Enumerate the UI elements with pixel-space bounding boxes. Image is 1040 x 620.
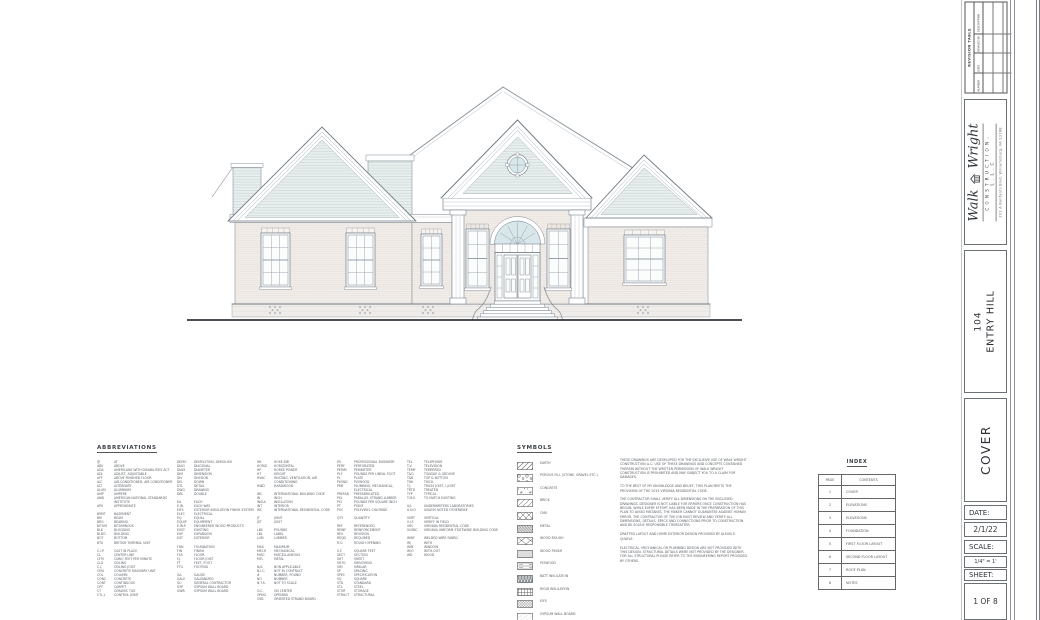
abbreviation-definition: LUMBER	[274, 536, 337, 540]
abbreviation-entry: JSTJOIST	[257, 520, 337, 524]
project-title-block: 104 ENTRY HILL	[964, 250, 1007, 393]
abbreviation-entry: PVCPOLYVINYL CHLORIDE	[337, 508, 407, 512]
note-paragraph: ELECTRICAL, MECHANICAL OR PLUMBING DESIG…	[620, 546, 748, 563]
index-page-number: 1	[819, 485, 842, 498]
index-page-number: 6	[819, 550, 842, 563]
symbol-label: CMU	[540, 512, 547, 516]
abbreviation-key: EXT	[177, 536, 194, 540]
symbol-label: WOOD FINISH	[540, 550, 562, 554]
symbol-label: GYPSUM WALL BOARD	[540, 613, 575, 617]
index-header: PAGE	[819, 474, 842, 485]
sheet-label: SHEET:	[964, 569, 1007, 581]
cmu-hatch-swatch	[517, 512, 533, 520]
abbreviation-entry: BTUBRITISH THERMAL UNIT	[97, 541, 177, 545]
revision-table-title: REVISION TABLE	[965, 2, 974, 92]
revision-column-header: REVISED BY	[974, 33, 982, 53]
abbreviation-key: PVC	[337, 508, 354, 512]
note-paragraph: TO THE BEST OF MY KNOWLEDGE AND BELIEF, …	[620, 484, 748, 493]
index-row: 7ROOF PLAN	[819, 563, 896, 576]
index-contents: ELEVATIONS	[842, 498, 896, 511]
abbreviation-entry: T.M.E.TO MATCH EXISTING	[407, 496, 502, 500]
abbreviation-key: STRUCT	[337, 593, 354, 597]
abbreviation-definition: WOOD	[424, 553, 502, 557]
symbol-legend-item: GYPSUM WALL BOARD	[517, 613, 613, 620]
abbreviation-entry: STRUCTSTRUCTURAL	[337, 593, 407, 597]
abbreviation-key: CTL.J.	[97, 593, 114, 597]
note-paragraph: THESE DRAWINGS ARE DEVELOPED FOR THE EXC…	[620, 458, 748, 480]
abbreviation-key: IRC	[257, 508, 274, 512]
abbreviation-definition: EXTERIOR	[194, 536, 257, 540]
symbol-legend-item: CMU	[517, 512, 613, 520]
revision-empty-cell	[983, 33, 992, 53]
abbreviation-definition: JOIST	[274, 520, 337, 524]
symbol-legend-item: RIGID INSULATION	[517, 588, 613, 596]
symbol-label: POROUS FILL (STONE, GRAVEL ETC.)	[540, 474, 598, 478]
symbol-label: BRICK	[540, 499, 550, 503]
revision-column-header: DESCRIPTION	[974, 2, 982, 33]
abbreviation-key: FTG	[177, 565, 194, 569]
note-paragraph: THE CONTRACTOR SHALL VERIFY ALL DIMENSIO…	[620, 497, 748, 527]
woodrough-hatch-swatch	[517, 537, 533, 545]
index-row: 1COVER	[819, 485, 896, 498]
abbreviation-key: OSB	[257, 597, 274, 601]
gypsum-hatch-swatch	[517, 613, 533, 620]
portico-right-window	[546, 224, 572, 290]
index-page-number: 2	[819, 498, 842, 511]
metal-hatch-swatch	[517, 525, 533, 533]
left-wing-window-1	[260, 228, 292, 289]
abbreviation-entry: HVACHEATING, VENTILATION, AIR CONDITIONI…	[257, 476, 337, 484]
abbreviation-key: LUM	[257, 536, 274, 540]
abbreviation-definition: ORIENTED STRAND BOARD	[274, 597, 337, 601]
abbreviation-key: U.N.O	[407, 508, 424, 512]
project-name: ENTRY HILL	[986, 290, 997, 352]
abbreviation-column: HBHOSE BIBHORIZHORIZONTALHPHORSE POWERHT…	[257, 460, 337, 602]
company-logo-block: Walk Wright CONSTRUCTION, L.L.C 201 A Bu…	[964, 99, 1007, 245]
revision-empty-cell	[983, 52, 992, 72]
index-row: 3ELEVATIONS	[819, 511, 896, 524]
abbreviations-title: ABBREVIATIONS	[97, 445, 157, 453]
index-page-number: 4	[819, 524, 842, 537]
abbreviation-column: P.E.PROFESSIONAL ENGINEERPERFPERFORATEDP…	[337, 460, 407, 598]
index-page-number: 7	[819, 563, 842, 576]
abbreviation-entry: FTGFOOTING	[177, 565, 257, 569]
abbreviation-key: GWB	[177, 589, 194, 593]
revision-empty-row	[983, 2, 993, 92]
symbols-list: EARTHPOROUS FILL (STONE, GRAVEL ETC.)CON…	[517, 462, 613, 620]
abbreviation-key: QTY	[337, 516, 354, 520]
recess-window	[420, 229, 444, 288]
abbreviation-entry: GWBGYPSUM WALL BOARD	[177, 589, 257, 593]
plywood-hatch-swatch	[517, 562, 533, 570]
rigid-hatch-swatch	[517, 588, 533, 596]
abbreviation-definition: HEATING, VENTILATION, AIR CONDITIONING	[274, 476, 337, 484]
abbreviation-key: HWD	[257, 484, 274, 488]
abbreviation-entry: VUSBCVIRGINIA UNIFORM STATEWIDE BUILDING…	[407, 528, 502, 532]
abbreviation-entry: MTLMETAL	[257, 557, 337, 561]
scale-value: 1/4" = 1'	[964, 556, 1007, 568]
symbol-legend-item: BRICK	[517, 499, 613, 507]
abbreviation-definition: ROUGH OPENING	[354, 541, 407, 545]
abbreviation-definition: POLYVINYL CHLORIDE	[354, 508, 407, 512]
abbreviation-key: VUSBC	[407, 528, 424, 532]
note-paragraph: DRAFTED LAYOUT AND HOME EXTERIOR DESIGN …	[620, 532, 748, 541]
logo-word-walk: Walk	[968, 189, 981, 221]
symbol-label: EIFS	[540, 600, 547, 604]
abbreviations-columns: @ATABVABOVEADAAMERICANS WITH DISABILITIE…	[97, 460, 507, 602]
abbreviation-key: T.M.E.	[407, 496, 424, 500]
abbreviation-definition: PLUMBING, MECHANICAL, ELECTRICAL	[354, 484, 407, 492]
abbreviation-definition: VIRGINIA UNIFORM STATEWIDE BUILDING CODE	[424, 528, 502, 532]
abbreviation-definition: FOOTING	[194, 565, 257, 569]
symbol-label: PLYWOOD	[540, 562, 556, 566]
abbreviation-definition: HARDWOOD	[274, 484, 337, 488]
sheet-title-block: COVER	[964, 398, 1007, 502]
date-label: DATE:	[964, 505, 1007, 520]
abbreviation-key: PME	[337, 484, 354, 492]
symbol-legend-item: PLYWOOD	[517, 562, 613, 570]
abbreviation-key: DBL	[177, 492, 194, 496]
border-line-inner-1	[1010, 0, 1011, 620]
index-header: CONTENTS	[842, 474, 896, 485]
sheet-title: COVER	[979, 425, 993, 475]
index-contents: COVER	[842, 485, 896, 498]
abbreviation-entry: OSBORIENTED STRAND BOARD	[257, 597, 337, 601]
abbreviation-entry: PMEPLUMBING, MECHANICAL, ELECTRICAL	[337, 484, 407, 492]
revision-table-grid: REVISION TABLENUMBERDATEREVISED BYDESCRI…	[964, 1, 1007, 93]
abbreviation-entry: WDWOOD	[407, 553, 502, 557]
revision-column-header: NUMBER	[974, 72, 982, 92]
abbreviation-column: TELTELEPHONET.V.TELEVISIONTEMPTEMPEREDT&…	[407, 460, 502, 557]
sheet-number: 1 OF 8	[964, 583, 1007, 620]
abbreviation-key: MTL	[257, 557, 274, 561]
sheet-index: INDEX PAGECONTENTS1COVER2ELEVATIONS3ELEV…	[818, 448, 896, 590]
batt-hatch-swatch	[517, 575, 533, 583]
left-wing-window-2	[345, 228, 377, 289]
abbreviation-key: WD	[407, 553, 424, 557]
symbol-label: RIGID INSULATION	[540, 588, 569, 592]
abbreviation-key: ANSI	[97, 496, 114, 504]
symbols-legend: SYMBOLS EARTHPOROUS FILL (STONE, GRAVEL …	[517, 434, 613, 620]
symbols-title: SYMBOLS	[517, 445, 552, 453]
revision-empty-cell	[993, 72, 1002, 92]
index-contents: SECOND FLOOR LAYOUT	[842, 550, 896, 563]
abbreviation-entry: CTL.J.CONTROL JOINT	[97, 593, 177, 597]
woodfinish-hatch-swatch	[517, 550, 533, 558]
index-row: 2ELEVATIONS	[819, 498, 896, 511]
symbol-legend-item: CONCRETE	[517, 487, 613, 495]
titleblock-separator-line	[961, 0, 962, 620]
abbreviation-entry: R.O.ROUGH OPENING	[337, 541, 407, 545]
abbreviation-key: APX	[97, 504, 114, 508]
abbreviation-entry: HWDHARDWOOD	[257, 484, 337, 488]
index-page-number: 3	[819, 511, 842, 524]
symbol-label: WOOD ROUGH	[540, 537, 564, 541]
project-number: 104	[974, 290, 984, 352]
index-contents: FOUNDATION	[842, 524, 896, 537]
revision-empty-cell	[993, 33, 1002, 53]
abbreviation-key: R.O.	[337, 541, 354, 545]
logo-subtitle: CONSTRUCTION, L.L.C	[983, 123, 997, 221]
revision-empty-cell	[983, 2, 992, 33]
index-row: 8NOTES	[819, 576, 896, 589]
abbreviation-entry: LUMLUMBER	[257, 536, 337, 540]
symbol-label: BATT INSULATION	[540, 575, 568, 579]
abbreviation-entry: U.N.OUNLESS NOTED OTHERWISE	[407, 508, 502, 512]
abbreviation-definition: CONTROL JOINT	[114, 593, 177, 597]
abbreviations-section: ABBREVIATIONS @ATABVABOVEADAAMERICANS WI…	[97, 434, 507, 601]
index-row: 5FIRST FLOOR LAYOUT	[819, 537, 896, 550]
symbol-legend-item: METAL	[517, 525, 613, 533]
symbol-legend-item: EIFS	[517, 600, 613, 608]
scale-label: SCALE:	[964, 540, 1007, 554]
abbreviation-key: BTU	[97, 541, 114, 545]
abbreviation-definition: QUANTITY	[354, 516, 407, 520]
date-value: 2/1/22	[964, 522, 1007, 537]
symbol-legend-item: WOOD FINISH	[517, 550, 613, 558]
abbreviation-definition: METAL	[274, 557, 337, 561]
abbreviation-definition: TO MATCH EXISTING	[424, 496, 502, 500]
abbreviation-definition: NOT TO SCALE	[274, 581, 337, 585]
revision-empty-cell	[993, 2, 1002, 33]
abbreviation-definition: GYPSUM WALL BOARD	[194, 589, 257, 593]
index-row: 4FOUNDATION	[819, 524, 896, 537]
revision-empty-row	[993, 2, 1003, 92]
index-row: 6SECOND FLOOR LAYOUT	[819, 550, 896, 563]
earth-hatch-swatch	[517, 462, 533, 470]
index-title: INDEX	[847, 459, 868, 467]
abbreviation-key: N.T.S.	[257, 581, 274, 585]
abbreviation-entry: APXAPPROXIMATE	[97, 504, 177, 508]
drawing-sheet: ABBREVIATIONS @ATABVABOVEADAAMERICANS WI…	[0, 0, 1040, 620]
eifs-hatch-swatch	[517, 600, 533, 608]
abbreviation-definition: APPROXIMATE	[114, 504, 177, 508]
abbreviation-key: HVAC	[257, 476, 274, 484]
porous-hatch-swatch	[517, 474, 533, 482]
abbreviation-definition: STRUCTURAL	[354, 593, 407, 597]
revision-column-header: DATE	[974, 52, 982, 72]
logo-address: 201 A Bulifants Blvd, Williamsburg, VA 2…	[999, 123, 1003, 221]
index-contents: NOTES	[842, 576, 896, 589]
revision-table: REVISION TABLENUMBERDATEREVISED BYDESCRI…	[963, 0, 1008, 94]
abbreviation-entry: N.T.S.NOT TO SCALE	[257, 581, 337, 585]
index-contents: ROOF PLAN	[842, 563, 896, 576]
symbol-label: EARTH	[540, 462, 551, 466]
abbreviation-column: DEMODEMOLITION, DEMOLISHDIAGDIAGONALDIAM…	[177, 460, 257, 594]
abbreviation-entry: IRCINTERNATIONAL RESIDENTIAL CODE	[257, 508, 337, 512]
concrete-hatch-swatch	[517, 487, 533, 495]
revision-empty-cell	[993, 52, 1002, 72]
symbol-label: CONCRETE	[540, 487, 558, 491]
abbreviation-column: @ATABVABOVEADAAMERICANS WITH DISABILITIE…	[97, 460, 177, 598]
index-page-number: 5	[819, 537, 842, 550]
revision-empty-cell	[983, 72, 992, 92]
border-line-inner-2	[1014, 0, 1015, 620]
index-contents: FIRST FLOOR LAYOUT	[842, 537, 896, 550]
house-elevation-drawing	[185, 78, 745, 325]
company-logo: Walk Wright	[968, 123, 981, 221]
right-wing-window	[623, 230, 667, 285]
abbreviation-entry: QTYQUANTITY	[337, 516, 407, 520]
portico-left-window	[465, 224, 491, 290]
symbol-legend-item: BATT INSULATION	[517, 575, 613, 583]
index-contents: ELEVATIONS	[842, 511, 896, 524]
abbreviation-definition: UNLESS NOTED OTHERWISE	[424, 508, 502, 512]
symbol-legend-item: EARTH	[517, 462, 613, 470]
logo-house-icon	[970, 173, 981, 184]
abbreviation-entry: EXTEXTERIOR	[177, 536, 257, 540]
brick-hatch-swatch	[517, 499, 533, 507]
logo-word-wright: Wright	[968, 123, 981, 168]
abbreviation-definition: BRITISH THERMAL UNIT	[114, 541, 177, 545]
index-page-number: 8	[819, 576, 842, 589]
border-line-edge-1	[1036, 0, 1037, 620]
abbreviation-definition: AMERICAN NATIONAL STANDARDS INSTITUTE	[114, 496, 177, 504]
abbreviation-definition: INTERNATIONAL RESIDENTIAL CODE	[274, 508, 337, 512]
abbreviation-entry: ANSIAMERICAN NATIONAL STANDARDS INSTITUT…	[97, 496, 177, 504]
abbreviation-key: JST	[257, 520, 274, 524]
abbreviation-entry: DBLDOUBLE	[177, 492, 257, 496]
symbol-legend-item: POROUS FILL (STONE, GRAVEL ETC.)	[517, 474, 613, 482]
general-notes: THESE DRAWINGS ARE DEVELOPED FOR THE EXC…	[620, 458, 748, 567]
symbol-label: METAL	[540, 525, 550, 529]
abbreviation-definition: DOUBLE	[194, 492, 257, 496]
index-table: PAGECONTENTS1COVER2ELEVATIONS3ELEVATIONS…	[818, 474, 896, 590]
symbol-legend-item: WOOD ROUGH	[517, 537, 613, 545]
